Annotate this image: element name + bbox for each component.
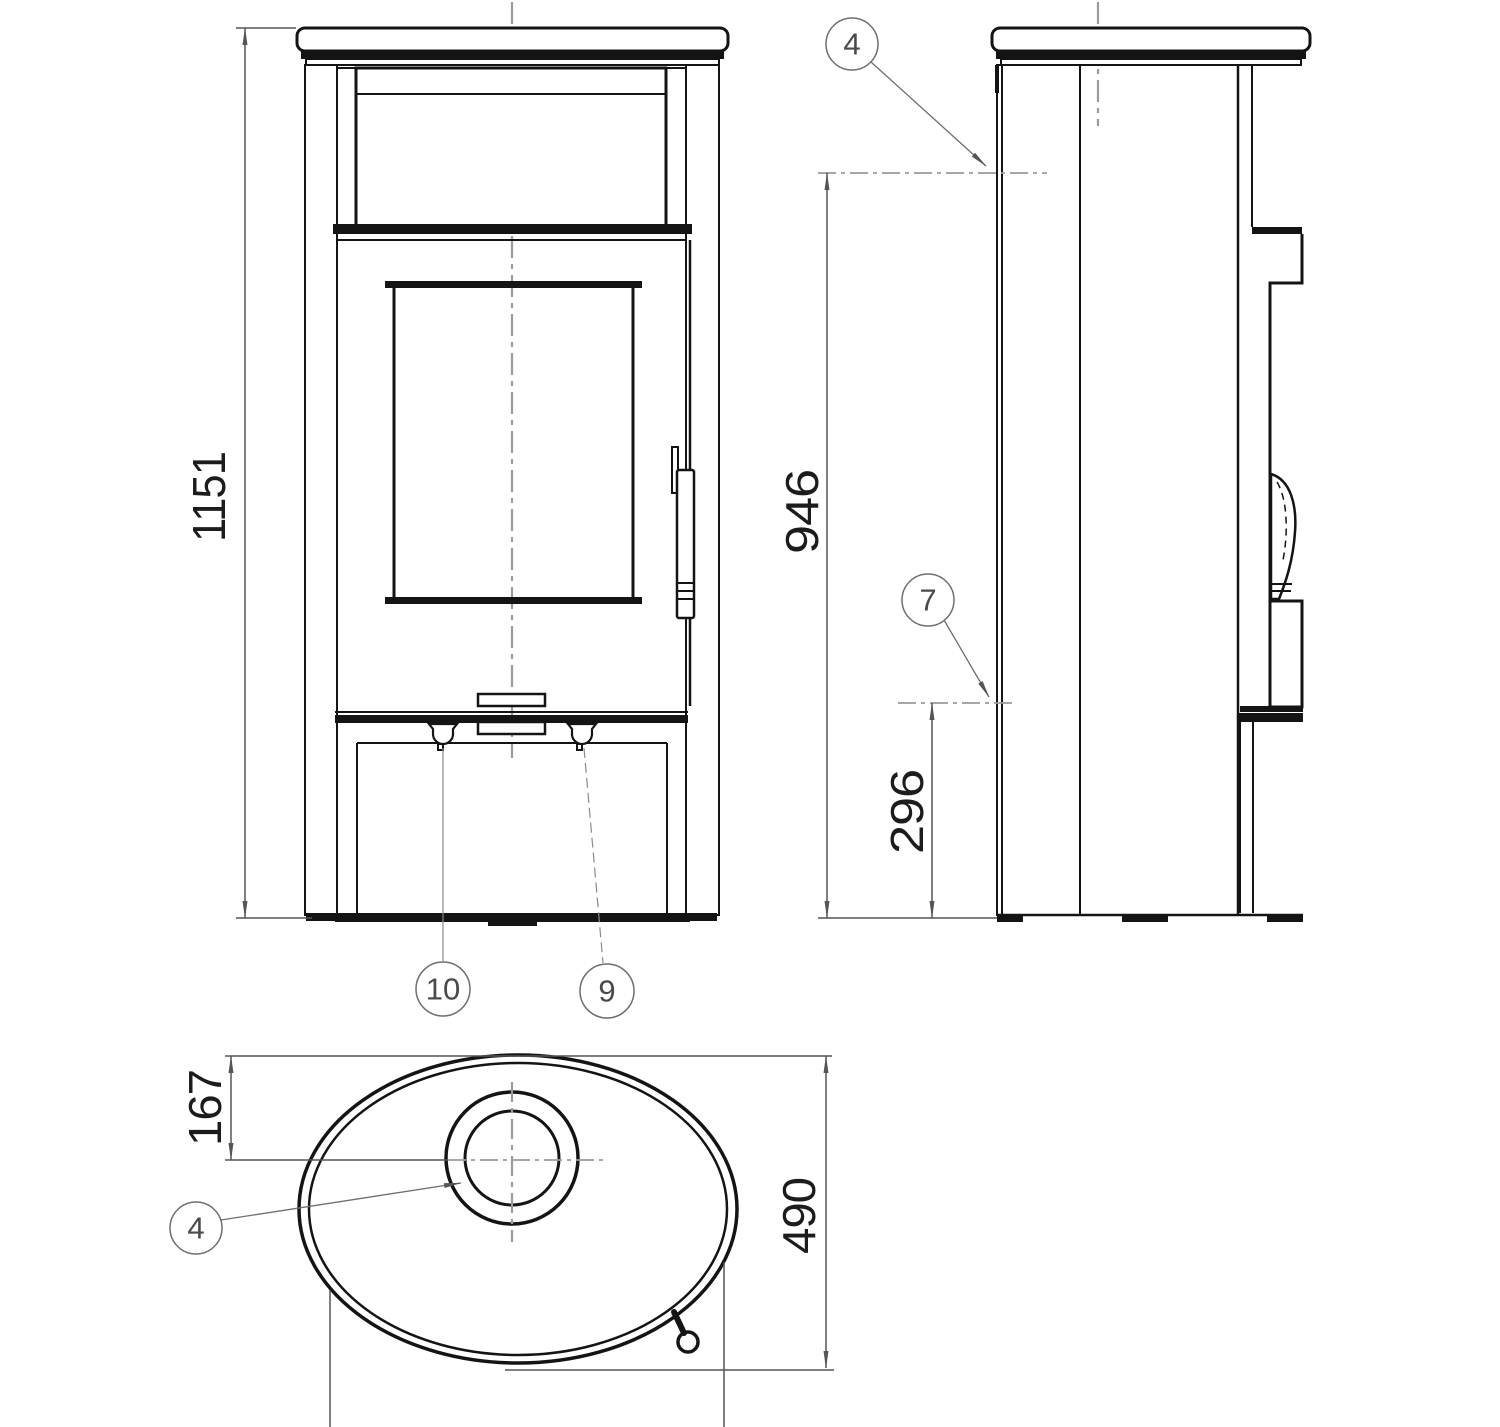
callout-4-top-leader — [221, 1183, 461, 1220]
right-knob-tick — [577, 744, 582, 750]
air-slot-upper — [478, 694, 545, 706]
side-back-wall-stub — [995, 65, 999, 93]
dim-front-height-label: 1151 — [183, 452, 235, 542]
front-cap-trim — [306, 59, 719, 65]
left-knob-tick — [438, 744, 443, 750]
door-top-frame-band — [1252, 227, 1302, 234]
door-handle-bar — [677, 470, 694, 618]
dim-depth-label: 490 — [773, 1178, 825, 1254]
side-door-handle — [1271, 474, 1295, 599]
technical-drawing-page: 1151 946 296 167 490 4 7 10 9 4 — [0, 0, 1500, 1427]
front-right-foot — [687, 913, 717, 921]
window-top-bar — [385, 281, 642, 288]
front-base-notch — [488, 919, 537, 926]
side-bottom-band-2 — [1238, 713, 1303, 722]
side-bottom-band-1 — [1240, 706, 1303, 712]
dimension-labels: 1151 946 296 167 490 — [179, 452, 933, 1254]
side-foot-rear — [997, 915, 1023, 922]
left-control-knob — [429, 724, 457, 744]
warming-box-frame — [356, 68, 666, 226]
callout-10-label: 10 — [426, 972, 460, 1007]
air-slot-lower — [478, 722, 545, 734]
front-left-pillar — [305, 65, 337, 915]
side-foot-mid — [1122, 915, 1168, 922]
callout-4-side-label: 4 — [843, 27, 860, 62]
side-top-cap — [992, 28, 1310, 51]
top-view — [299, 1055, 737, 1363]
side-cap-band — [996, 50, 1306, 59]
callout-4-side-leader — [871, 62, 986, 166]
callout-7-leader — [944, 620, 989, 697]
side-cap-trim — [1001, 59, 1301, 65]
callout-9-label: 9 — [598, 974, 615, 1009]
front-cap-band — [301, 50, 724, 59]
side-back-wall — [997, 65, 1002, 915]
dim-flue-offset-label: 167 — [179, 1070, 231, 1146]
side-foot-front — [1267, 915, 1303, 922]
top-outer-oval — [299, 1055, 737, 1363]
stove-drawing-svg: 1151 946 296 167 490 4 7 10 9 4 — [0, 0, 1500, 1427]
window-bottom-bar — [385, 597, 642, 604]
top-handle-ring — [678, 1332, 698, 1352]
door-lower-frame — [1270, 601, 1302, 707]
callout-9-leader — [584, 748, 603, 963]
top-inner-oval — [309, 1063, 727, 1355]
warming-box-shelf — [333, 224, 692, 234]
front-view — [297, 2, 728, 926]
dim-flue-height-label: 946 — [776, 470, 828, 554]
side-view — [992, 2, 1310, 922]
callout-4-top-label: 4 — [187, 1211, 204, 1246]
right-control-knob — [568, 724, 596, 744]
callout-7-label: 7 — [919, 583, 936, 618]
front-top-cap — [297, 28, 728, 51]
dimensions — [225, 28, 1047, 1427]
front-left-foot — [306, 913, 336, 921]
dim-lower-height-label: 296 — [881, 770, 933, 854]
